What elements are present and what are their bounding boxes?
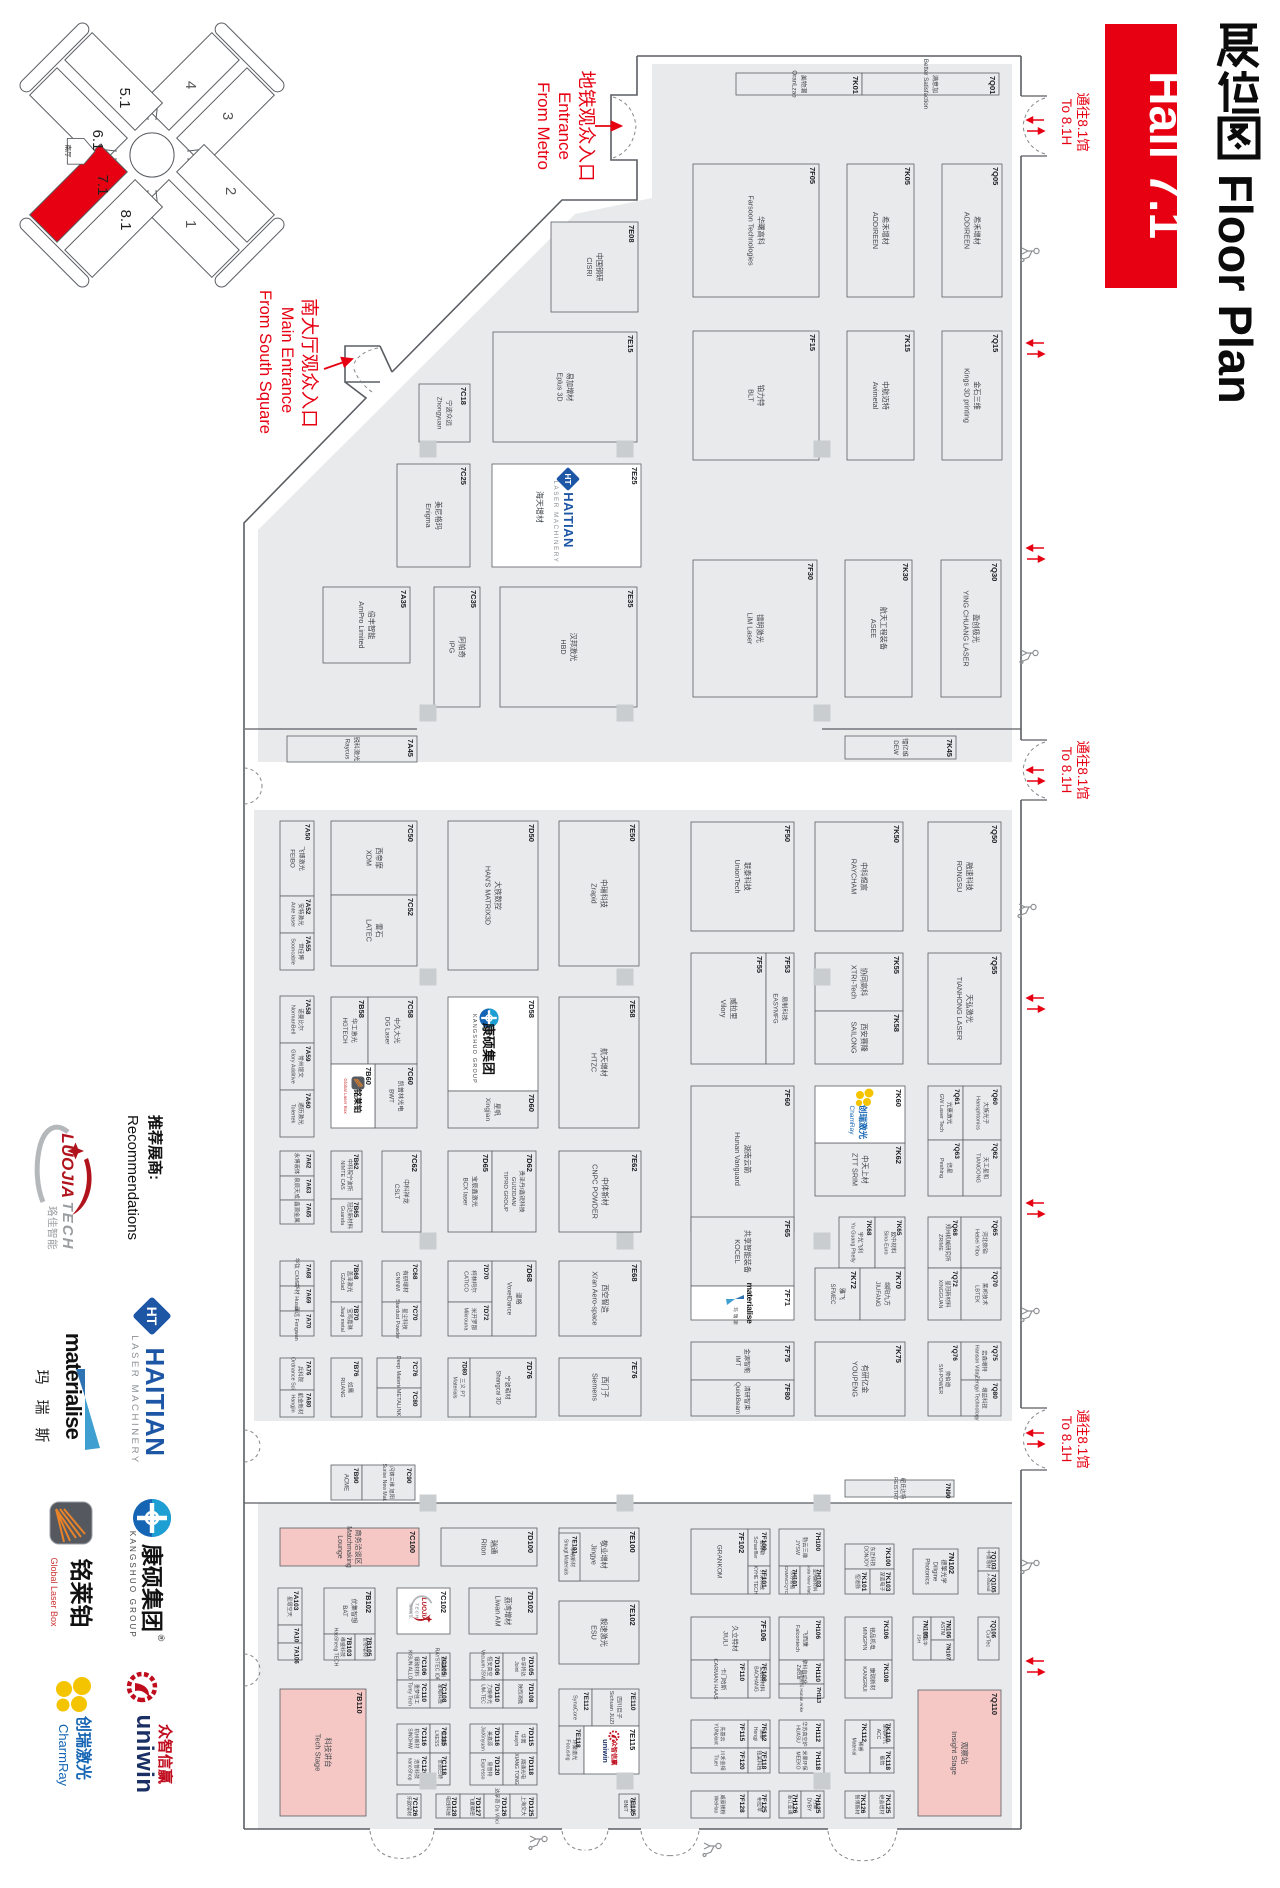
svg-text:ESU: ESU [590,1625,599,1640]
svg-text:TIPRO GROUP: TIPRO GROUP [502,1171,508,1212]
svg-text:LASER MACHINERY: LASER MACHINERY [129,1335,140,1465]
svg-text:四川巨子: 四川巨子 [615,1696,622,1719]
svg-text:米开罗那: 米开罗那 [470,1308,478,1331]
svg-text:冠达新材料: 冠达新材料 [346,1202,354,1230]
svg-text:7D125: 7D125 [527,1797,534,1817]
svg-text:航天工程装备: 航天工程装备 [879,607,888,650]
svg-text:7H106: 7H106 [814,1620,821,1640]
svg-text:镭明激光: 镭明激光 [756,614,765,643]
svg-text:7C18: 7C18 [459,387,468,405]
svg-text:西安赛隆: 西安赛隆 [860,1023,869,1053]
svg-text:7F128: 7F128 [738,1794,745,1813]
svg-text:ADDIREEN: ADDIREEN [963,212,972,249]
svg-text:7Q65: 7Q65 [991,1220,998,1236]
svg-text:Tech Stage: Tech Stage [313,1734,322,1772]
svg-text:WeiHao: WeiHao [713,1796,719,1814]
svg-text:CARMAN HAAS: CARMAN HAAS [712,1658,718,1699]
svg-text:Ante laser: Ante laser [289,902,295,927]
svg-text:宝鸡嘉琳: 宝鸡嘉琳 [346,1308,354,1330]
svg-text:7K100: 7K100 [884,1547,891,1567]
svg-text:Eplus 3D: Eplus 3D [556,372,565,401]
svg-text:LUOJIA: LUOJIA [420,1597,427,1621]
svg-text:SM-POWER: SM-POWER [937,1364,943,1394]
svg-text:7D110: 7D110 [493,1683,500,1702]
svg-text:7D62: 7D62 [525,1154,534,1172]
svg-text:西门子: 西门子 [601,1376,610,1398]
svg-text:大族数控: 大族数控 [494,881,503,910]
svg-text:卡门哈斯: 卡门哈斯 [719,1668,727,1691]
svg-text:7C116: 7C116 [420,1727,427,1746]
svg-text:7Q50: 7Q50 [990,825,999,843]
svg-text:7Q80: 7Q80 [991,1383,998,1399]
svg-text:Entrance: Entrance [555,92,574,160]
svg-text:7Q110: 7Q110 [990,1693,999,1715]
svg-text:Vacuum JSVac: Vacuum JSVac [480,1650,486,1684]
svg-text:7A106: 7A106 [293,1646,299,1664]
svg-text:清研智束: 清研智束 [743,1386,751,1411]
svg-text:KYHE TECH: KYHE TECH [752,1566,758,1595]
svg-text:7C76: 7C76 [411,1361,418,1377]
svg-text:7D70: 7D70 [482,1264,489,1280]
svg-text:中天上材: 中天上材 [861,1155,870,1184]
svg-text:丹聚: 丹聚 [812,1799,818,1809]
svg-text:HT: HT [563,473,573,485]
svg-text:7Q55: 7Q55 [990,956,999,974]
svg-text:创瑞激光: 创瑞激光 [74,1715,93,1780]
svg-text:镭亿维: 镭亿维 [901,738,909,757]
svg-text:7A52: 7A52 [304,899,311,915]
svg-text:7C80: 7C80 [411,1391,418,1407]
svg-text:海天增材: 海天增材 [535,491,545,523]
svg-text:GUIZIDAN/: GUIZIDAN/ [510,1177,516,1207]
svg-text:7C70: 7C70 [411,1305,418,1321]
svg-text:8.1: 8.1 [117,210,134,231]
svg-text:7K05: 7K05 [903,167,912,185]
svg-text:Schaeffler: Schaeffler [752,1536,758,1559]
svg-text:远能检测: 远能检测 [439,1656,446,1676]
svg-text:7H118: 7H118 [814,1751,821,1770]
svg-text:Floor Plan: Floor Plan [1209,174,1262,404]
svg-text:威豪镁粉: 威豪镁粉 [719,1794,726,1814]
svg-text:METALINK: METALINK [395,1389,401,1417]
svg-text:安特激光: 安特激光 [297,903,305,926]
svg-text:7K45: 7K45 [945,739,954,757]
svg-text:贵泽丹/鑫锐科技: 贵泽丹/鑫锐科技 [518,1170,526,1212]
svg-text:观察站: 观察站 [960,1742,970,1765]
svg-text:ChamRay: ChamRay [848,1106,855,1136]
svg-text:7B110: 7B110 [355,1692,364,1714]
svg-text:Hangjin: Hangjin [290,1394,296,1412]
svg-text:河北依铂: 河北依铂 [981,1231,989,1254]
svg-text:JIUFANG: JIUFANG [874,1281,880,1307]
svg-text:宁波萌材: 宁波萌材 [503,1375,511,1399]
svg-text:宝航新材料: 宝航新材料 [758,1666,765,1691]
svg-text:铭莱铂: 铭莱铂 [68,1559,94,1628]
svg-text:珞佳智能: 珞佳智能 [46,1206,59,1250]
svg-text:7E76: 7E76 [630,1361,639,1379]
svg-text:7D60: 7D60 [527,1094,536,1112]
svg-text:恒道脉: 恒道脉 [854,1574,861,1589]
svg-text:铭品机电: 铭品机电 [868,1627,876,1650]
svg-text:Glory Additive: Glory Additive [289,1049,295,1084]
svg-text:Expresso: Expresso [480,1759,486,1780]
svg-text:Riton: Riton [480,1539,489,1556]
svg-text:Enigma: Enigma [424,503,433,527]
svg-text:LATEC: LATEC [365,919,374,942]
svg-text:KANGSHUO GROUP: KANGSHUO GROUP [471,1014,477,1084]
svg-text:南大厅观众入口: 南大厅观众入口 [299,298,320,428]
svg-text:7B90: 7B90 [352,1468,359,1484]
svg-text:NormanBell: NormanBell [289,1005,295,1034]
svg-text:7A55: 7A55 [304,936,311,952]
svg-text:雅飞: 雅飞 [838,1288,846,1300]
svg-text:7A80: 7A80 [305,1393,311,1408]
svg-text:7E102: 7E102 [628,1604,637,1626]
svg-text:星熠空天: 星熠空天 [286,1596,294,1617]
svg-text:欧中材料: 欧中材料 [890,1232,898,1254]
svg-text:Zhongyuan: Zhongyuan [436,397,443,430]
svg-text:凯普林光电: 凯普林光电 [396,1081,404,1112]
svg-text:川禾金相: 川禾金相 [719,1750,726,1770]
svg-text:7D102: 7D102 [526,1591,535,1613]
svg-text:西帝摩: 西帝摩 [375,847,384,869]
svg-text:JYSW: JYSW [794,1540,800,1556]
svg-text:UnionTech: UnionTech [733,860,742,894]
svg-text:JiaXinyuan: JiaXinyuan [480,1726,486,1751]
svg-text:舍弗勒: 舍弗勒 [759,1540,766,1555]
svg-text:7F120: 7F120 [738,1751,745,1770]
svg-text:7K68: 7K68 [865,1220,872,1236]
svg-text:Joint: Joint [513,1661,519,1672]
svg-text:易普特: 易普特 [486,1761,493,1776]
svg-text:7A65: 7A65 [305,1203,311,1218]
svg-text:7E25: 7E25 [630,467,639,485]
svg-text:泉辰天成: 泉辰天成 [293,1177,301,1199]
svg-text:盖泽激光: 盖泽激光 [346,1271,354,1293]
svg-text:Mikrouna: Mikrouna [462,1307,468,1331]
svg-text:ZRIME: ZRIME [937,1234,943,1251]
svg-text:镶磅材料: 镶磅材料 [413,1656,420,1676]
svg-text:华苏真空炉: 华苏真空炉 [801,1721,808,1746]
svg-text:Falcontech: Falcontech [794,1625,800,1652]
svg-text:Hebei Yibo: Hebei Yibo [973,1229,979,1256]
svg-text:绵阳九方: 绵阳九方 [883,1282,891,1306]
svg-text:Hansphtonics: Hansphtonics [974,1096,980,1130]
svg-text:7A62: 7A62 [305,1154,311,1169]
svg-text:通往8.1馆: 通往8.1馆 [1075,92,1090,151]
svg-text:莱克斯: 莱克斯 [440,1731,447,1746]
svg-text:KANGSHUO GROUP: KANGSHUO GROUP [128,1531,137,1639]
svg-text:7E110: 7E110 [629,1692,636,1711]
svg-text:帝纳新材: 帝纳新材 [569,1547,576,1567]
svg-text:先基云: 先基云 [719,1726,726,1741]
svg-text:BLT: BLT [747,389,756,402]
svg-text:7C25: 7C25 [459,467,468,485]
svg-text:Hanson Vday: Hanson Vday [974,1345,980,1378]
svg-text:BNIT: BNIT [622,1800,628,1811]
svg-text:7D72: 7D72 [482,1305,489,1321]
svg-text:7A58: 7A58 [304,999,311,1015]
svg-text:达孚奇 Da Vinci: 达孚奇 Da Vinci [493,1788,500,1824]
svg-text:RUANG: RUANG [339,1377,345,1397]
svg-text:Siemens: Siemens [591,1373,600,1401]
svg-text:莱邦技术: 莱邦技术 [981,1283,989,1306]
svg-text:7K58: 7K58 [892,1014,901,1032]
svg-text:7.1: 7.1 [94,175,111,196]
svg-text:TECH: TECH [59,1202,76,1251]
svg-text:翔通光电: 翔通光电 [520,1759,527,1779]
svg-text:常州煜文: 常州煜文 [297,1055,305,1078]
svg-text:Truer: Truer [713,1755,719,1767]
svg-text:DG Laser: DG Laser [384,1017,391,1046]
svg-text:宁波众远: 宁波众远 [445,400,454,427]
svg-text:5.1: 5.1 [116,88,133,109]
svg-text:乐欧增材: 乐欧增材 [405,1796,412,1816]
svg-text:XIANG TONG: XIANG TONG [513,1753,519,1784]
svg-text:闪铸三维 旭阳: 闪铸三维 旭阳 [388,1466,396,1499]
svg-text:SFMEC: SFMEC [829,1284,835,1306]
svg-text:中航迈特: 中航迈特 [881,381,890,410]
svg-text:布拉苹: 布拉苹 [755,1797,762,1812]
svg-text:全尼特: 全尼特 [629,1798,636,1813]
svg-text:BCX laser: BCX laser [462,1178,469,1206]
svg-text:7F55: 7F55 [755,956,764,973]
svg-text:通往8.1馆: 通往8.1馆 [1075,1409,1090,1468]
svg-text:Focusing: Focusing [565,1739,571,1760]
svg-text:Ordnance Sci.: Ordnance Sci. [290,1357,296,1391]
svg-text:7K75: 7K75 [894,1345,903,1363]
svg-text:YOUPENG: YOUPENG [851,1361,860,1397]
svg-text:Materials: Materials [452,1377,458,1399]
svg-text:中瑞科技: 中瑞科技 [600,879,609,908]
svg-text:LBTEK: LBTEK [973,1285,979,1303]
svg-text:CNMNC/QTC: CNMNC/QTC [784,1566,789,1595]
svg-text:中景增材: 中景增材 [985,1550,992,1569]
svg-text:CATICO: CATICO [462,1271,468,1292]
svg-text:7D126: 7D126 [500,1797,507,1817]
svg-text:1: 1 [182,220,199,228]
svg-text:浙江亚通: 浙江亚通 [786,1794,793,1814]
svg-text:Yu Guang Phelly: Yu Guang Phelly [850,1222,856,1262]
svg-text:杭州新材: 杭州新材 [413,1728,420,1748]
svg-text:7B76: 7B76 [352,1361,359,1377]
svg-text:7D100: 7D100 [526,1531,535,1553]
svg-text:三义 P7: 三义 P7 [459,1378,466,1397]
svg-text:To 8.1H: To 8.1H [1059,99,1074,146]
svg-text:阿帕奇: 阿帕奇 [458,636,467,658]
svg-text:ACME: ACME [343,1474,349,1491]
svg-text:Global Laser Box: Global Laser Box [343,1078,348,1114]
svg-text:BAOHANG: BAOHANG [752,1666,758,1692]
svg-text:MINGPIN: MINGPIN [861,1627,867,1651]
svg-text:7Q70: 7Q70 [991,1271,998,1287]
svg-text:ACC: ACC [875,1729,881,1740]
svg-text:7F106: 7F106 [759,1620,768,1641]
svg-text:7C52: 7C52 [406,898,415,916]
svg-text:Zengyi Technology: Zengyi Technology [974,1376,980,1421]
svg-text:世创巴特: 世创巴特 [436,1759,443,1779]
svg-text:天弘激光: 天弘激光 [965,994,974,1023]
svg-text:7K101: 7K101 [860,1572,867,1592]
svg-text:玛瑞斯: 玛瑞斯 [732,1307,739,1327]
svg-text:Avimetal: Avimetal [871,382,880,410]
svg-text:7A35: 7A35 [399,590,408,608]
svg-text:7C60: 7C60 [406,1067,415,1085]
svg-text:7N107: 7N107 [945,1643,951,1660]
svg-text:From South Square: From South Square [256,290,274,434]
svg-text:JSH: JSH [915,1634,921,1644]
svg-text:7E50: 7E50 [628,824,637,842]
svg-text:TIANGONG: TIANGONG [974,1153,980,1183]
svg-text:Tomy Tech: Tomy Tech [407,1682,413,1706]
svg-text:柯林柯尔: 柯林柯尔 [470,1270,478,1293]
svg-text:慧晨华: 慧晨华 [921,1631,928,1646]
svg-text:美物潮: 美物潮 [799,75,807,94]
svg-text:7Q62: 7Q62 [991,1143,998,1159]
svg-text:鑫源金属: 鑫源金属 [293,1201,301,1223]
svg-text:7A60: 7A60 [304,1093,311,1109]
svg-text:KISUN ALLOY: KISUN ALLOY [407,1650,413,1683]
svg-text:HAN'S MATRIX3D: HAN'S MATRIX3D [484,866,493,925]
svg-text:恒基: 恒基 [759,1729,766,1739]
svg-text:7C62: 7C62 [410,1154,419,1172]
svg-text:7Q72: 7Q72 [951,1271,958,1287]
svg-text:7Q63: 7Q63 [953,1143,960,1159]
svg-text:7D80: 7D80 [461,1361,467,1376]
svg-text:飞博激光: 飞博激光 [297,846,305,871]
svg-text:uniwin: uniwin [131,1715,158,1794]
svg-text:铭某科技: 铭某科技 [755,1750,762,1770]
svg-text:康硕集团: 康硕集团 [139,1544,164,1632]
svg-text:7A45: 7A45 [406,739,415,757]
svg-text:7C90: 7C90 [405,1468,412,1484]
svg-text:世佳博: 世佳博 [297,943,305,960]
svg-text:KANGRUI: KANGRUI [861,1666,867,1692]
svg-text:聚培时代: 聚培时代 [882,1724,889,1744]
svg-text:锐科激光: 锐科激光 [352,737,360,762]
svg-text:RAYCHAM: RAYCHAM [850,859,859,894]
svg-text:materialise: materialise [745,1282,755,1324]
svg-text:Farsoon Technologies: Farsoon Technologies [747,195,756,266]
svg-text:uniwin: uniwin [601,1739,610,1763]
svg-text:DEW: DEW [892,740,899,755]
svg-text:7A76: 7A76 [305,1361,311,1376]
svg-text:上海交大: 上海交大 [520,1796,527,1816]
svg-text:7C100: 7C100 [408,1531,417,1553]
svg-text:MEEKO: MEEKO [795,1751,801,1769]
svg-text:瑞: 瑞 [33,1399,50,1414]
svg-text:7Q05: 7Q05 [991,167,1000,185]
svg-text:宇光飞利: 宇光飞利 [857,1232,865,1254]
svg-text:ZTT SRIM: ZTT SRIM [851,1153,860,1186]
svg-text:XINGGUAN: XINGGUAN [937,1280,943,1309]
svg-text:7B102: 7B102 [364,1591,373,1613]
svg-text:Hall 7.1: Hall 7.1 [1139,71,1192,239]
svg-text:4: 4 [182,81,199,89]
svg-text:铭莱铂: 铭莱铂 [353,1089,363,1113]
svg-text:FEIBO: FEIBO [289,849,296,868]
svg-text:7F110: 7F110 [738,1663,745,1681]
svg-text:7A50: 7A50 [304,824,311,840]
svg-text:To 8.1H: To 8.1H [1059,1416,1074,1463]
svg-text:深蓝电子: 深蓝电子 [878,1571,885,1591]
svg-text:浩普科技: 浩普科技 [413,1759,420,1779]
svg-text:湖南顾科 Hunan Anke: 湖南顾科 Hunan Anke [798,1670,805,1713]
svg-text:中科院宁波所: 中科院宁波所 [346,1159,354,1192]
svg-text:星皓科技: 星皓科技 [436,1684,443,1704]
svg-text:HAITIAN: HAITIAN [140,1348,170,1457]
svg-text:陕西消微: 陕西消微 [516,1684,523,1704]
svg-text:稀睿: 稀睿 [857,1741,864,1751]
svg-text:OranLzao: OranLzao [791,70,798,98]
svg-text:Smagt Materials: Smagt Materials [563,1539,569,1576]
svg-text:CNPC POWDER: CNPC POWDER [591,1164,600,1219]
svg-text:Liwan AM: Liwan AM [494,1595,503,1626]
svg-text:中久大光: 中久大光 [393,1018,402,1045]
svg-text:7A63: 7A63 [305,1179,311,1194]
svg-text:商务洽谈区: 商务洽谈区 [354,1530,363,1565]
svg-text:勃云三维: 勃云三维 [801,1537,809,1559]
svg-text:星帆: 星帆 [493,1103,502,1117]
svg-text:推荐展商:: 推荐展商: [146,1115,164,1180]
svg-text:GW Laser Tech: GW Laser Tech [938,1094,944,1132]
svg-text:珞佳智能: 珞佳智能 [408,1603,413,1618]
svg-text:易加增材: 易加增材 [566,373,575,402]
svg-text:REISTRT: REISTRT [892,1477,898,1501]
svg-text:CSLT: CSLT [393,1184,400,1200]
svg-text:智博新材: 智博新材 [853,1794,860,1814]
svg-text:Global Laser Box: Global Laser Box [49,1557,59,1627]
svg-text:亚洲新材料: 亚洲新材料 [811,1569,818,1592]
svg-text:EASYMFG: EASYMFG [772,993,779,1023]
svg-text:ADDIREEN: ADDIREEN [871,212,880,249]
svg-text:帅伯迪: 帅伯迪 [944,1371,952,1388]
svg-text:Vilory: Vilory [719,1000,728,1018]
svg-text:CharmRay: CharmRay [56,1724,71,1787]
svg-text:大族光子: 大族光子 [982,1102,990,1125]
svg-text:QuickBeam: QuickBeam [734,1382,741,1414]
svg-text:郑州机械研究所: 郑州机械研究所 [944,1224,952,1262]
svg-text:LXESS: LXESS [433,1730,439,1747]
svg-text:ASEE: ASEE [869,619,878,638]
svg-text:7Q30: 7Q30 [990,563,999,581]
svg-text:易制科技: 易制科技 [780,996,788,1021]
svg-text:Material: Material [851,1738,857,1756]
svg-text:CISRI: CISRI [585,257,594,276]
svg-text:HUASU: HUASU [795,1725,801,1743]
svg-text:诺曼比尔: 诺曼比尔 [297,1008,305,1031]
svg-text:汉邦激光: 汉邦激光 [569,633,578,662]
svg-text:7F80: 7F80 [783,1383,792,1400]
svg-text:7H110: 7H110 [814,1663,821,1682]
svg-text:瑞通: 瑞通 [490,1540,499,1554]
svg-text:华曙高科: 华曙高科 [757,216,766,245]
svg-text:7N102: 7N102 [947,1552,956,1574]
svg-text:3: 3 [219,112,236,120]
svg-text:SAILONG: SAILONG [850,1022,859,1054]
svg-text:Sooncable: Sooncable [289,938,295,964]
svg-text:BAT: BAT [341,1605,348,1617]
svg-text:康瑞新材: 康瑞新材 [868,1668,876,1691]
svg-text:7D76: 7D76 [525,1361,534,1379]
svg-text:7D116: 7D116 [493,1727,500,1746]
svg-text:有研亿金: 有研亿金 [861,1365,870,1394]
svg-text:7N90: 7N90 [944,1483,951,1499]
svg-text:UM-TEC: UM-TEC [480,1684,486,1704]
svg-text:7B58: 7B58 [357,1000,366,1018]
svg-text:7F05: 7F05 [808,167,817,184]
svg-text:7F65: 7F65 [783,1220,792,1237]
